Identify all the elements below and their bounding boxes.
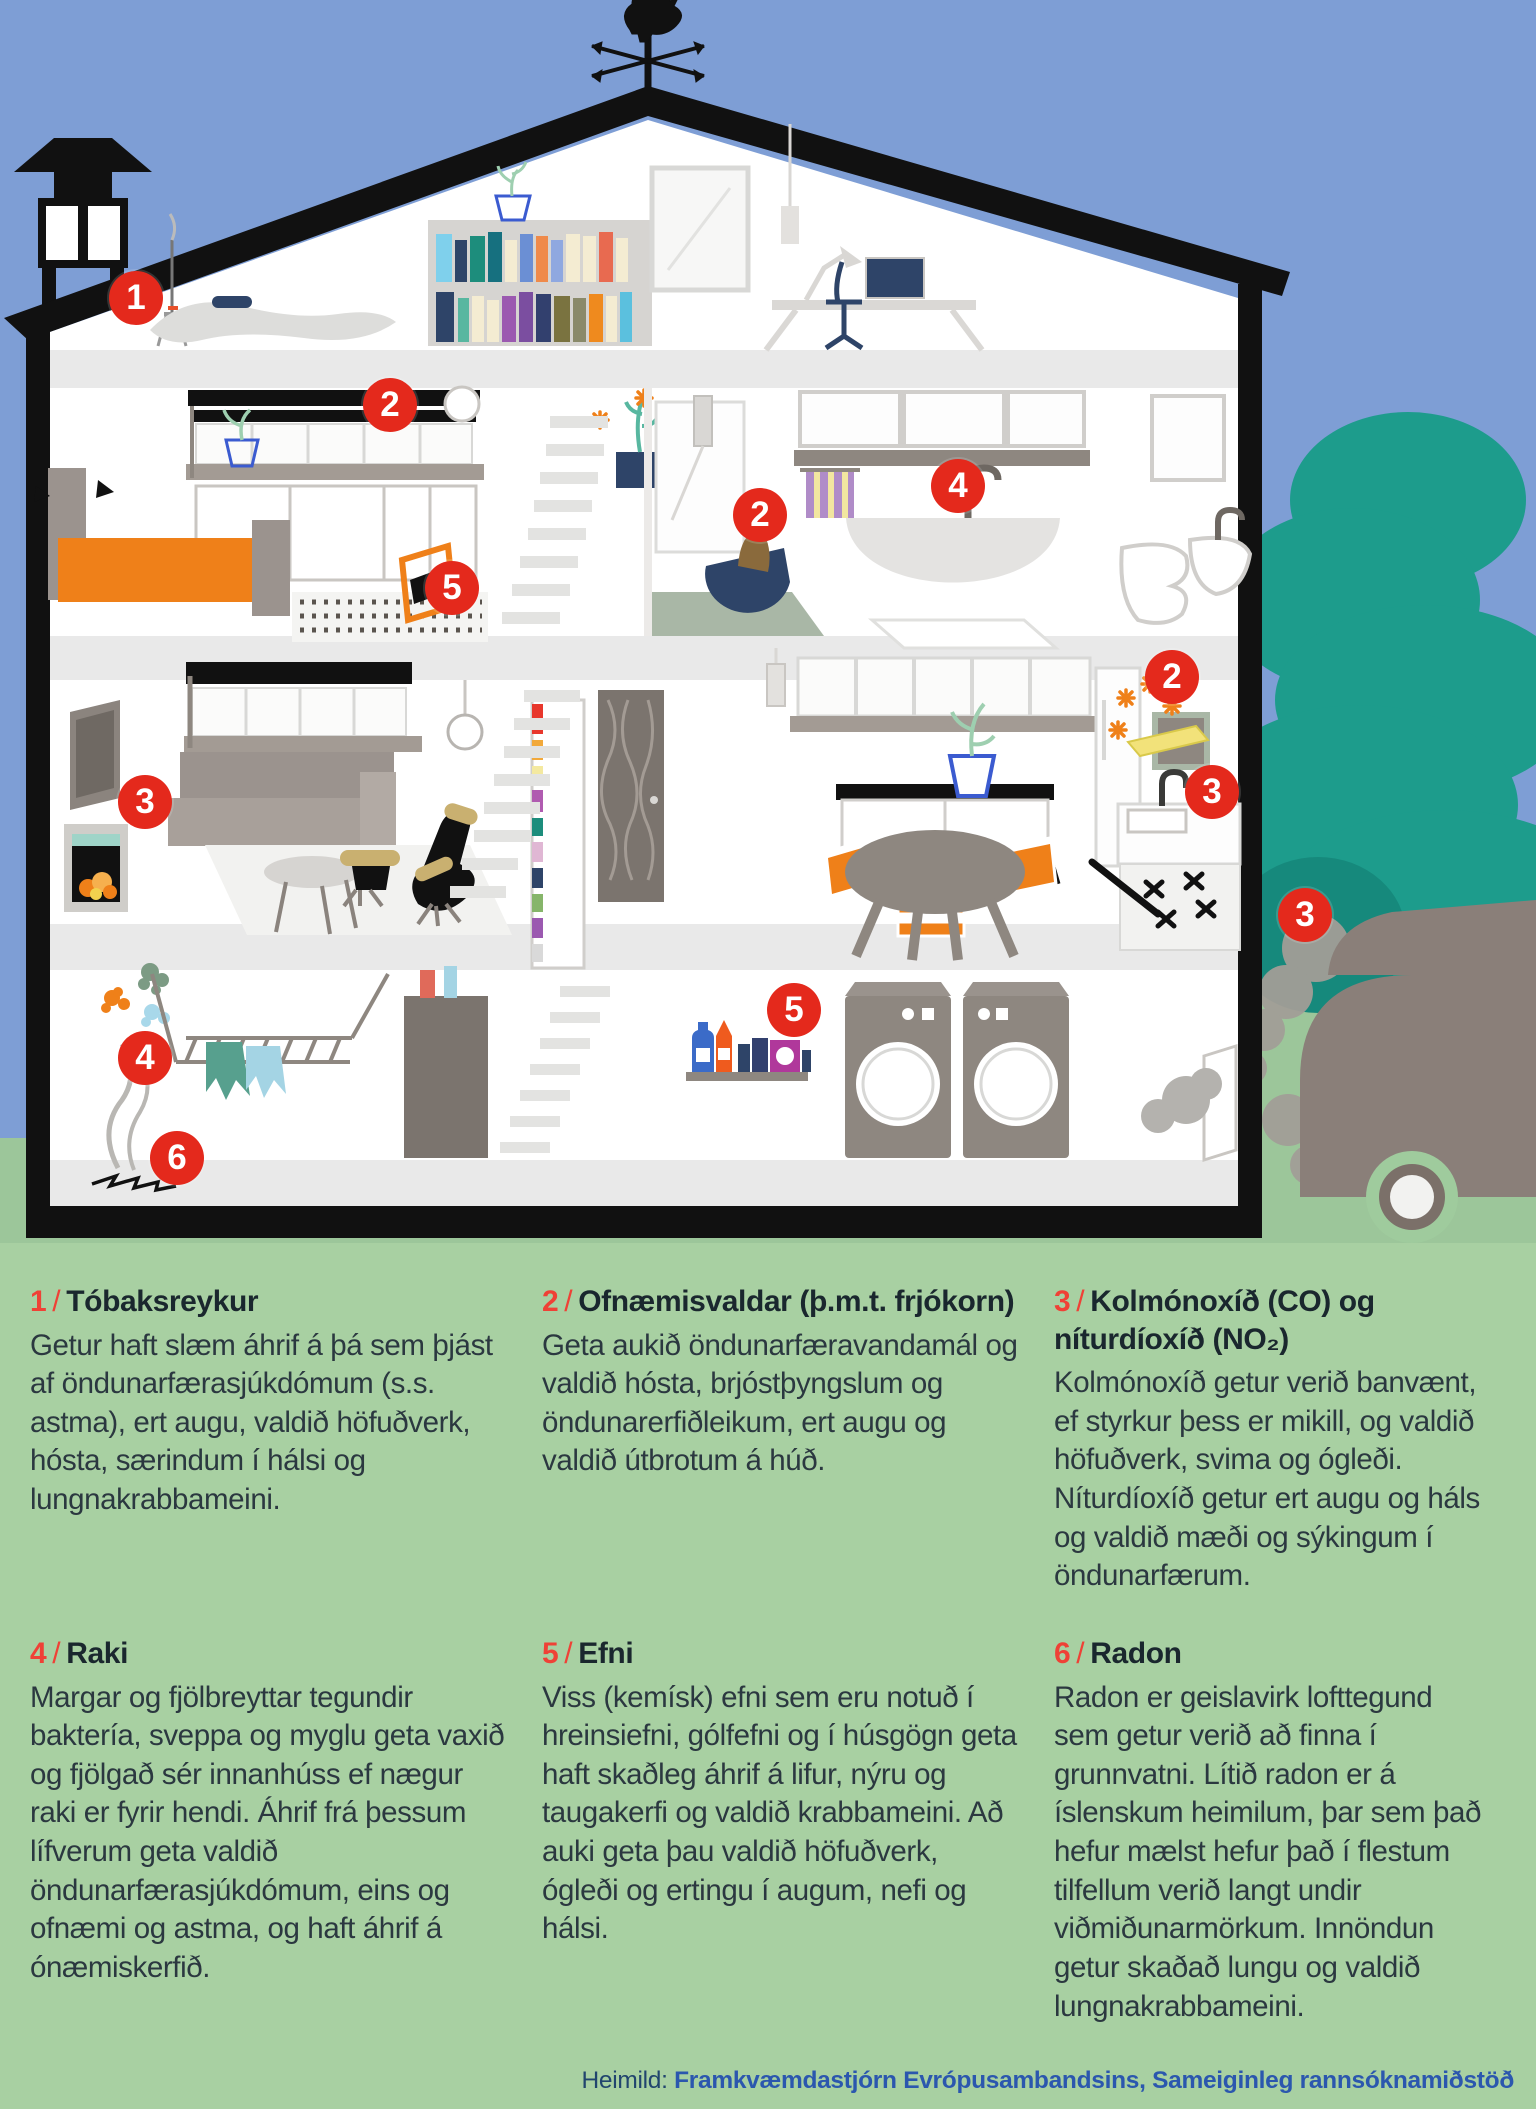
ball-pendant-lamp bbox=[448, 715, 482, 749]
interior-door bbox=[598, 690, 664, 902]
hazard-title: 4/Raki bbox=[30, 1635, 508, 1673]
sofa bbox=[168, 752, 396, 848]
source-label: Heimild: bbox=[582, 2067, 668, 2094]
hazard-marker-6-basement-floor-crack: 6 bbox=[150, 1131, 204, 1185]
hazard-description: Margar og fjölbreyttar tegundir baktería… bbox=[30, 1679, 508, 1988]
hazard-title: 5/Efni bbox=[542, 1635, 1020, 1673]
hazard-title: 6/Radon bbox=[1054, 1635, 1484, 1673]
hazard-name: Raki bbox=[66, 1637, 128, 1670]
towel-radiator bbox=[800, 468, 860, 518]
hazard-block-5: 5/Efni Viss (kemísk) efni sem eru notuð … bbox=[542, 1635, 1054, 2026]
hazard-number: 1 bbox=[30, 1285, 46, 1318]
hazard-name: Efni bbox=[578, 1637, 633, 1670]
hazard-block-2: 2/Ofnæmisvaldar (þ.m.t. frjókorn) Geta a… bbox=[542, 1283, 1054, 1635]
tall-bookshelf bbox=[532, 700, 584, 968]
hazard-block-3: 3/Kolmónoxíð (CO) og níturdíoxíð (NO₂) K… bbox=[1054, 1283, 1518, 1635]
living-window-blinds bbox=[184, 662, 422, 752]
slash-separator: / bbox=[1070, 1285, 1090, 1318]
ball-pendant-lamp bbox=[445, 387, 479, 421]
slash-separator: / bbox=[46, 1285, 66, 1318]
hazard-name: Radon bbox=[1090, 1637, 1181, 1670]
house-cross-section-illustration bbox=[0, 0, 1536, 1243]
hazard-description: Radon er geislavirk lofttegund sem getur… bbox=[1054, 1679, 1484, 2027]
hazard-legend-grid: 1/Tóbaksreykur Getur haft slæm áhrif á þ… bbox=[30, 1283, 1518, 2026]
hazard-marker-3-outdoor-car-exhaust: 3 bbox=[1278, 888, 1332, 942]
hazard-description: Viss (kemísk) efni sem eru notuð í hrein… bbox=[542, 1679, 1020, 1949]
dining-window bbox=[790, 658, 1096, 732]
hazard-marker-4-basement-drying-rack: 4 bbox=[118, 1031, 172, 1085]
hazard-block-4: 4/Raki Margar og fjölbreyttar tegundir b… bbox=[30, 1635, 542, 2026]
fireplace bbox=[64, 824, 128, 912]
toilet bbox=[1121, 544, 1187, 622]
hazard-block-1: 1/Tóbaksreykur Getur haft slæm áhrif á þ… bbox=[30, 1283, 542, 1635]
hazard-marker-2-kitchen-allergens: 2 bbox=[1145, 650, 1199, 704]
monitor bbox=[866, 258, 924, 298]
hazard-title: 2/Ofnæmisvaldar (þ.m.t. frjókorn) bbox=[542, 1283, 1020, 1321]
hazard-marker-5-basement-cleaning-products: 5 bbox=[767, 983, 821, 1037]
hazard-marker-2-bedroom-window-pollen: 2 bbox=[363, 378, 417, 432]
hazard-name: Ofnæmisvaldar (þ.m.t. frjókorn) bbox=[578, 1285, 1014, 1318]
hazard-number: 6 bbox=[1054, 1637, 1070, 1670]
car bbox=[1300, 900, 1536, 1243]
hazard-marker-5-bedroom-rug-chair: 5 bbox=[425, 561, 479, 615]
hazard-description: Geta aukið öndunarfæravandamál og valdið… bbox=[542, 1327, 1020, 1482]
hazard-name: Tóbaksreykur bbox=[66, 1285, 258, 1318]
infographic-poster: 125242334653 1/Tóbaksreykur Getur haft s… bbox=[0, 0, 1536, 2109]
hazard-number: 3 bbox=[1054, 1285, 1070, 1318]
hazard-marker-3-living-room-fireplace: 3 bbox=[118, 775, 172, 829]
bath-mat bbox=[872, 620, 1056, 648]
slash-separator: / bbox=[558, 1285, 578, 1318]
hazard-description: Kolmónoxíð getur verið banvænt, ef styrk… bbox=[1054, 1364, 1484, 1596]
hazard-number: 5 bbox=[542, 1637, 558, 1670]
shower-head bbox=[694, 396, 712, 446]
hazard-title: 3/Kolmónoxíð (CO) og níturdíoxíð (NO₂) bbox=[1054, 1283, 1484, 1358]
skylight-window bbox=[652, 168, 748, 290]
hazard-number: 2 bbox=[542, 1285, 558, 1318]
slash-separator: / bbox=[1070, 1637, 1090, 1670]
slash-separator: / bbox=[46, 1637, 66, 1670]
hazard-marker-2-dog-bed: 2 bbox=[733, 488, 787, 542]
hazard-name: Kolmónoxíð (CO) og níturdíoxíð (NO₂) bbox=[1054, 1285, 1375, 1356]
hazard-description: Getur haft slæm áhrif á þá sem þjást af … bbox=[30, 1327, 508, 1520]
source-text: Framkvæmdastjórn Evrópusambandsins, Same… bbox=[674, 2067, 1514, 2094]
slash-separator: / bbox=[558, 1637, 578, 1670]
legend-panel: 1/Tóbaksreykur Getur haft slæm áhrif á þ… bbox=[0, 1243, 1536, 2109]
hazard-title: 1/Tóbaksreykur bbox=[30, 1283, 508, 1321]
hazard-block-6: 6/Radon Radon er geislavirk lofttegund s… bbox=[1054, 1635, 1518, 2026]
hazard-number: 4 bbox=[30, 1637, 46, 1670]
hazard-marker-1-tobacco-smoke-attic: 1 bbox=[109, 271, 163, 325]
hazard-marker-4-bathroom-bathtub: 4 bbox=[931, 459, 985, 513]
hazard-marker-3-kitchen-stove: 3 bbox=[1185, 765, 1239, 819]
source-attribution: Heimild: Framkvæmdastjórn Evrópusambands… bbox=[582, 2067, 1515, 2095]
